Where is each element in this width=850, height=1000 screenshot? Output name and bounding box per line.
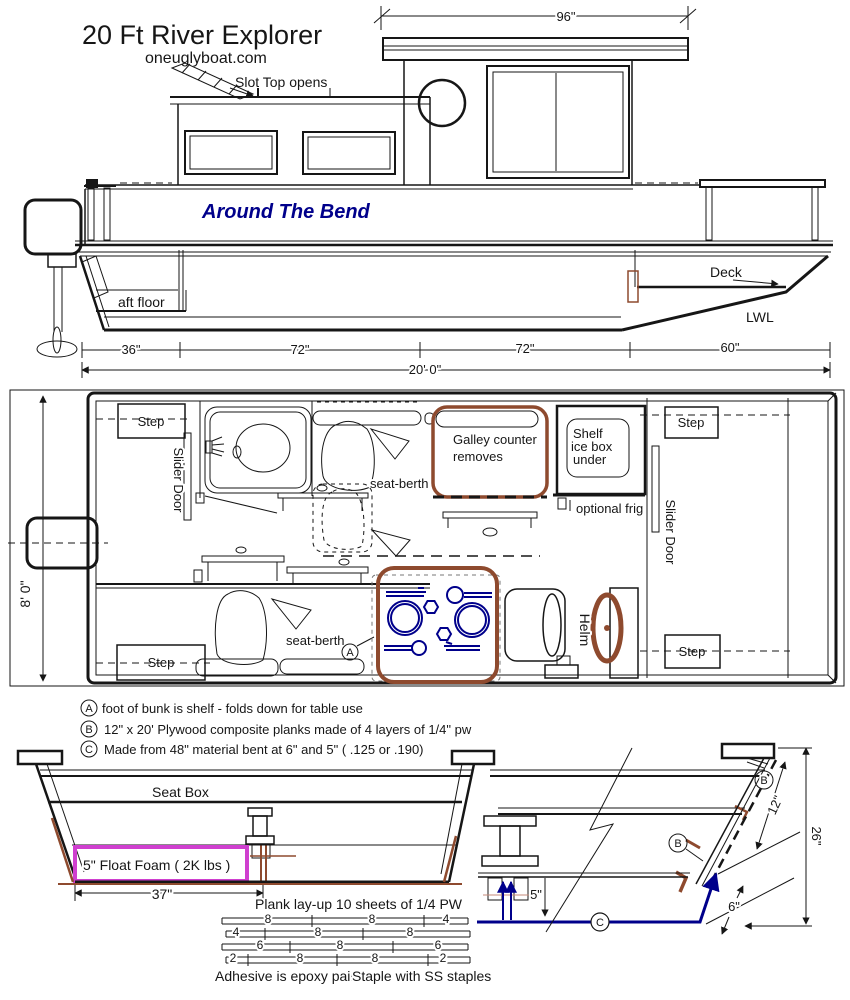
table-dishes: [384, 587, 492, 655]
helm-area: Helm: [505, 588, 638, 678]
dim-12-label: 12": [764, 793, 786, 817]
cross-section-full: Seat Box 5" Float Foam ( 2K lbs ) 37" Pl…: [18, 751, 494, 912]
note-c-callout-letter: C: [596, 917, 604, 929]
aft-floor-label: aft floor: [118, 294, 165, 310]
side-elevation-view: 20 Ft River Explorer oneuglyboat.com Slo…: [25, 6, 833, 378]
optional-frig-label: optional frig: [576, 501, 643, 516]
layup-r4-n3: 8: [372, 951, 379, 965]
layup-r2-n3: 8: [407, 925, 414, 939]
dim-6-label: 6": [728, 899, 740, 914]
helm-label: Helm: [577, 614, 593, 647]
dim-overall-label: 20' 0": [409, 362, 442, 377]
site-label: oneuglyboat.com: [145, 50, 267, 67]
layup-r4-n1: 2: [230, 951, 237, 965]
layup-r1-n3: 4: [443, 912, 450, 926]
table-outline: [378, 568, 497, 682]
dim-36-label: 36": [121, 342, 140, 357]
dim-72b-label: 72": [515, 341, 534, 356]
slider-door-fwd: [652, 446, 659, 532]
shelf-label-line3: under: [573, 452, 607, 467]
slider-door-label-2: Slider Door: [663, 499, 678, 565]
note-c-marker: C: [85, 744, 93, 756]
galley-label-line2: removes: [453, 449, 503, 464]
outboard-motor-elevation: [25, 200, 108, 357]
cabin-window-2: [303, 132, 395, 174]
helm-seat: [505, 589, 565, 661]
toilet: [236, 424, 290, 472]
shower-head-icon: [206, 441, 212, 453]
float-foam-label: 5" Float Foam ( 2K lbs ): [83, 857, 230, 873]
dim-roof-label: 96": [556, 9, 575, 24]
note-b-text: 12" x 20' Plywood composite planks made …: [104, 722, 472, 737]
galley: Galley counter removes: [433, 407, 547, 536]
layup-r3-n1: 6: [257, 938, 264, 952]
plank-layup-diagram: 8 8 4 4 8 8 6 8 6 2 8 8 2 Adhesive is ep…: [215, 912, 491, 984]
bow-rail: [700, 180, 825, 187]
seat-box-label: Seat Box: [152, 784, 209, 800]
slot-top-label: Slot Top opens: [235, 74, 327, 90]
adhesive-note: Adhesive is epoxy paint: [215, 968, 362, 984]
dim-beam-label: 8' 0": [17, 580, 33, 607]
dim-37-label: 37": [152, 886, 173, 902]
cabin-window-1: [185, 131, 277, 174]
step-label-2: Step: [678, 415, 705, 430]
pilothouse-window: [487, 66, 629, 178]
dim-72a-label: 72": [290, 342, 309, 357]
dim-60-label: 60": [720, 340, 739, 355]
layup-r2-n1: 4: [233, 925, 240, 939]
seat-berth-label-2: seat-berth: [286, 633, 345, 648]
dim-5-label: 5": [530, 887, 542, 902]
floor-plan-view: 8' 0" Step Step Step Step Slider Door Sl…: [8, 390, 844, 686]
note-b-callout-2-letter: B: [674, 838, 681, 850]
boat-plan-sheet: 20 Ft River Explorer oneuglyboat.com Slo…: [0, 0, 850, 1000]
note-a-marker: A: [85, 703, 93, 715]
deck-label: Deck: [710, 264, 743, 280]
note-b-marker: B: [85, 724, 92, 736]
dim-26-label: 26": [809, 826, 824, 845]
staple-note: Staple with SS staples: [352, 968, 491, 984]
slider-door-label-1: Slider Door: [171, 447, 186, 513]
galley-label-line1: Galley counter: [453, 432, 537, 447]
notes-list: A foot of bunk is shelf - folds down for…: [81, 700, 472, 757]
seat-berth-port: seat-berth: [313, 411, 434, 491]
dinette-table: [372, 568, 500, 682]
layup-r2-n2: 8: [315, 925, 322, 939]
note-c-text: Made from 48" material bent at 6" and 5"…: [104, 742, 424, 757]
blueprint-canvas: 20 Ft River Explorer oneuglyboat.com Slo…: [0, 0, 850, 1000]
seat-berth-label-1: seat-berth: [370, 476, 429, 491]
lwl-label: LWL: [746, 309, 774, 325]
layup-r1-n2: 8: [369, 912, 376, 926]
plank-layup-label: Plank lay-up 10 sheets of 1/4 PW: [255, 896, 463, 912]
layup-r4-n4: 2: [440, 951, 447, 965]
layup-r4-n2: 8: [297, 951, 304, 965]
boat-name: Around The Bend: [201, 201, 371, 223]
ice-box-shelf: Shelf ice box under optional frig: [553, 406, 645, 516]
note-a-callout-letter: A: [346, 647, 354, 659]
layup-r3-n2: 8: [337, 938, 344, 952]
layup-r1-n1: 8: [265, 912, 272, 926]
layup-r3-n3: 6: [435, 938, 442, 952]
porthole: [419, 80, 465, 126]
bathroom: [196, 401, 312, 513]
cross-section-detail: C 5" 12" B B 26" 6": [477, 744, 824, 934]
note-a-text: foot of bunk is shelf - folds down for t…: [102, 701, 363, 716]
step-label-1: Step: [138, 414, 165, 429]
page-title: 20 Ft River Explorer: [82, 20, 322, 50]
note-b-callout-1-letter: B: [760, 775, 767, 787]
